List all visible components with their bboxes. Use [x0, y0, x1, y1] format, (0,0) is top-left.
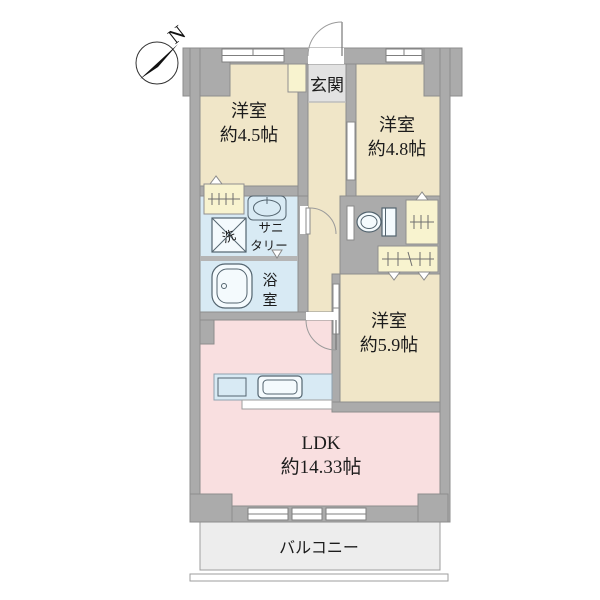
toilet-sliding-door: [347, 206, 354, 240]
floor-plan: N: [0, 0, 600, 600]
shoe-cabinet: [288, 64, 306, 92]
kitchen-counter-edge: [242, 400, 332, 409]
balcony-railing: [190, 574, 448, 581]
room-western-3-size: 約5.9帖: [360, 335, 419, 355]
ldk-label: LDK: [301, 433, 340, 454]
room-western-2-size: 約4.8帖: [368, 139, 427, 159]
window-top-right: [386, 49, 422, 62]
sanitary-label-line1: サニ: [258, 221, 283, 235]
room2-door: [347, 122, 355, 180]
bathtub-icon: [212, 264, 252, 308]
entrance-label: 玄関: [310, 76, 344, 95]
entrance-door: [308, 22, 344, 64]
ldk-size: 約14.33帖: [281, 456, 362, 478]
closet-room2: [406, 192, 438, 244]
window-top-left: [222, 49, 284, 62]
bathroom-label-char1: 浴: [262, 272, 277, 289]
compass: N: [136, 20, 190, 84]
bathroom-label-char2: 室: [262, 292, 277, 309]
room-western-2-label: 洋室: [379, 115, 415, 135]
balcony-sliding-windows: [248, 508, 366, 520]
room-western-1-size: 約4.5帖: [220, 125, 279, 145]
sanitary-label-line2: タリー: [250, 239, 288, 253]
room-western-1-label: 洋室: [231, 101, 267, 121]
balcony-label: バルコニー: [279, 540, 359, 557]
room-western-3-label: 洋室: [371, 311, 407, 331]
